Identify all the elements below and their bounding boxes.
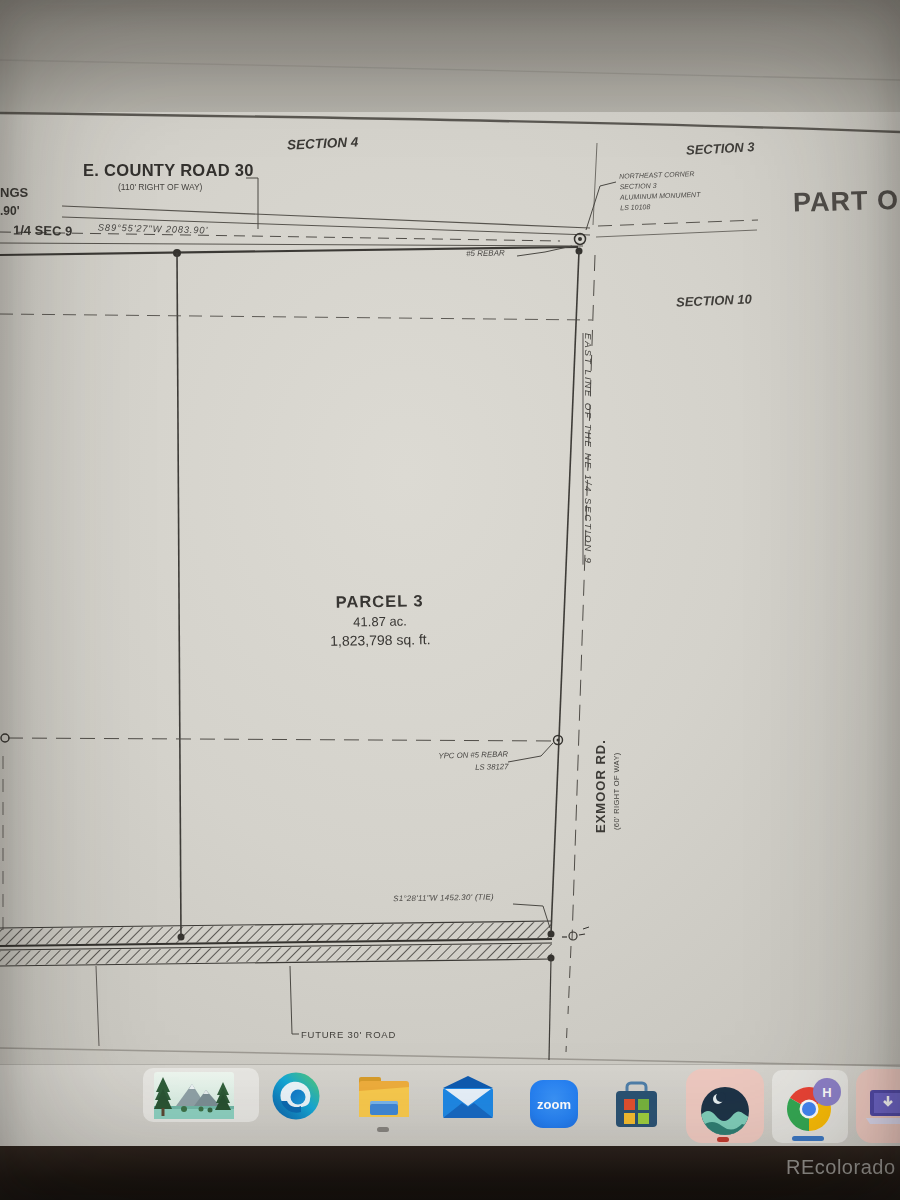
microsoft-store-icon (612, 1081, 661, 1129)
wave-app-icon (700, 1086, 750, 1136)
taskbar-item-download-app[interactable] (866, 1088, 900, 1134)
file-explorer-icon (358, 1073, 410, 1123)
exmoor-road-name: EXMOOR RD. (593, 739, 608, 833)
wave-app-indicator (717, 1137, 729, 1142)
parcel-acres: 41.87 ac. (280, 612, 480, 630)
parcel-info-block: PARCEL 3 41.87 ac. 1,823,798 sq. ft. (280, 590, 481, 649)
chrome-active-indicator (792, 1136, 824, 1141)
parcel-name: PARCEL 3 (280, 590, 480, 612)
zoom-icon-label: zoom (537, 1097, 571, 1112)
explorer-active-indicator (377, 1127, 389, 1132)
county-road-right-of-way: (110' RIGHT OF WAY) (118, 182, 202, 191)
exmoor-right-of-way: (60' RIGHT OF WAY) (612, 752, 620, 830)
left-edge-text-2: .90' (0, 204, 20, 218)
mail-icon (442, 1076, 494, 1123)
ne-corner-note: NORTHEAST CORNER SECTION 3 ALUMINUM MONU… (619, 168, 701, 213)
taskbar-item-file-explorer[interactable] (358, 1073, 410, 1127)
rebar-label: #5 REBAR (466, 248, 505, 257)
photographed-screen: SECTION 4 SECTION 3 PART OF E. COUNTY RO… (0, 0, 900, 1200)
future-road-label: FUTURE 30' ROAD (301, 1029, 396, 1039)
taskbar-item-zoom[interactable]: zoom (530, 1080, 578, 1128)
nature-photo-icon (154, 1072, 234, 1119)
taskbar-item-edge[interactable] (271, 1071, 321, 1125)
east-line-label: EAST LINE OF THE NE 1/4 SECTION 9 (583, 333, 594, 565)
left-edge-text-1: NGS (0, 185, 28, 200)
chrome-profile-badge: H (813, 1078, 841, 1106)
part-of-title: PART OF (793, 184, 900, 218)
section-4-label: SECTION 4 (287, 134, 359, 152)
taskbar-item-nature-photo[interactable] (154, 1072, 234, 1123)
microsoft-edge-icon (271, 1071, 321, 1121)
taskbar-item-microsoft-store[interactable] (612, 1081, 661, 1133)
county-road-name: E. COUNTY ROAD 30 (83, 161, 254, 180)
tie-bearing-label: S1°28'11"W 1452.30' (TIE) (393, 892, 494, 903)
ypc-note: YPC ON #5 REBAR LS 38127 (399, 748, 509, 775)
download-app-icon (866, 1088, 900, 1130)
left-edge-text-3: 1/4 SEC 9 (13, 222, 73, 238)
taskbar-item-mail[interactable] (442, 1076, 494, 1127)
chrome-badge-letter: H (822, 1085, 831, 1100)
taskbar-item-wave-app[interactable] (700, 1086, 750, 1140)
